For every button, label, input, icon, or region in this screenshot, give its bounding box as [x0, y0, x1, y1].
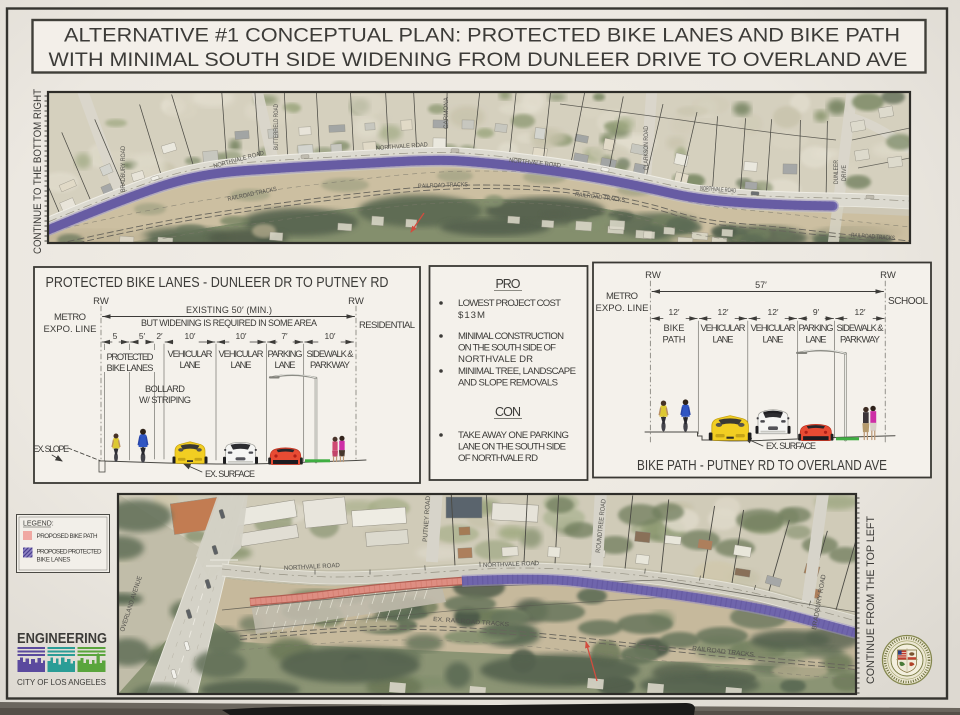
svg-text:12′: 12′ — [668, 307, 679, 317]
svg-text:MINIMAL TREE, LANDSCAPE: MINIMAL TREE, LANDSCAPE — [458, 366, 576, 377]
svg-text:10′: 10′ — [235, 331, 246, 341]
svg-text:TAKE AWAY ONE PARKING: TAKE AWAY ONE PARKING — [458, 430, 569, 441]
svg-text:AND SLOPE REMOVALS: AND SLOPE REMOVALS — [458, 378, 558, 389]
svg-text:BIKE PATH - PUTNEY RD TO OVERL: BIKE PATH - PUTNEY RD TO OVERLAND AVE — [637, 458, 887, 474]
svg-text:LANE: LANE — [713, 335, 734, 345]
svg-text:WITH MINIMAL SOUTH SIDE WIDENI: WITH MINIMAL SOUTH SIDE WIDENING FROM DU… — [49, 49, 908, 71]
svg-text:LANE ON THE SOUTH SIDE: LANE ON THE SOUTH SIDE — [458, 442, 566, 453]
svg-text:EXPO. LINE: EXPO. LINE — [596, 303, 649, 314]
svg-text:VEHICULAR: VEHICULAR — [701, 323, 746, 333]
svg-text:BOLLARD: BOLLARD — [145, 384, 185, 394]
svg-text:PRO: PRO — [496, 277, 521, 291]
svg-text:ALTERNATIVE #1 CONCEPTUAL PLAN: ALTERNATIVE #1 CONCEPTUAL PLAN: PROTECTE… — [64, 25, 900, 47]
svg-text:10′: 10′ — [184, 331, 195, 341]
svg-text:10′: 10′ — [324, 331, 335, 341]
svg-text:LANE: LANE — [763, 335, 784, 345]
svg-text:PROPOSED BIKE PATH: PROPOSED BIKE PATH — [37, 533, 98, 540]
svg-text:7′: 7′ — [281, 331, 288, 341]
svg-text:VEHICULAR: VEHICULAR — [751, 323, 796, 333]
svg-text:LANE: LANE — [231, 360, 252, 370]
svg-text:NORTHVALE DR: NORTHVALE DR — [458, 354, 533, 365]
svg-text:EX. SURFACE: EX. SURFACE — [205, 469, 255, 479]
svg-text:PATH: PATH — [663, 335, 686, 345]
svg-text:PROTECTED BIKE LANES - DUNLEER: PROTECTED BIKE LANES - DUNLEER DR TO PUT… — [46, 274, 389, 291]
svg-text:EX. SLOPE: EX. SLOPE — [33, 444, 69, 454]
svg-text:LEGEND:: LEGEND: — [23, 521, 54, 528]
svg-text:CITY OF LOS ANGELES: CITY OF LOS ANGELES — [17, 678, 106, 687]
svg-text:2′: 2′ — [156, 331, 163, 341]
svg-text:5: 5 — [113, 331, 118, 341]
svg-text:BUT WIDENING IS REQUIRED IN SO: BUT WIDENING IS REQUIRED IN SOME AREA — [141, 318, 317, 328]
svg-text:12′: 12′ — [717, 307, 728, 317]
svg-text:RESIDENTIAL: RESIDENTIAL — [359, 320, 415, 331]
svg-text:RW: RW — [645, 270, 661, 281]
svg-text:LANE: LANE — [806, 335, 827, 345]
svg-text:PARKING: PARKING — [799, 323, 834, 333]
svg-text:SCHOOL: SCHOOL — [888, 296, 928, 307]
svg-text:RW: RW — [93, 296, 109, 307]
svg-text:PARKING: PARKING — [268, 349, 303, 359]
svg-text:EXISTING 50′ (MIN.): EXISTING 50′ (MIN.) — [186, 305, 272, 315]
svg-text:12′: 12′ — [767, 307, 778, 317]
svg-text:BIKE LANES: BIKE LANES — [37, 557, 71, 564]
svg-text:METRO: METRO — [606, 291, 638, 302]
svg-text:CONTINUE FROM THE TOP LEFT: CONTINUE FROM THE TOP LEFT — [865, 516, 877, 684]
svg-text:EXPO. LINE: EXPO. LINE — [44, 324, 97, 335]
svg-text:METRO: METRO — [54, 312, 86, 323]
svg-text:ON THE SOUTH SIDE OF: ON THE SOUTH SIDE OF — [458, 343, 556, 354]
svg-text:RW: RW — [880, 270, 896, 281]
svg-text:BIKE: BIKE — [664, 323, 685, 333]
svg-text:MINIMAL CONSTRUCTION: MINIMAL CONSTRUCTION — [458, 331, 564, 342]
svg-text:PARKWAY: PARKWAY — [840, 335, 880, 345]
svg-text:VEHICULAR: VEHICULAR — [219, 349, 264, 359]
svg-text:CONTINUE TO THE BOTTOM RIGHT: CONTINUE TO THE BOTTOM RIGHT — [32, 89, 44, 254]
svg-text:CON: CON — [495, 405, 521, 419]
svg-text:LANE: LANE — [180, 360, 201, 370]
svg-text:RW: RW — [348, 296, 364, 307]
svg-text:LANE: LANE — [275, 360, 296, 370]
svg-text:$13M: $13M — [458, 310, 485, 321]
svg-text:ENGINEERING: ENGINEERING — [17, 631, 107, 647]
svg-text:LOWEST PROJECT COST: LOWEST PROJECT COST — [458, 298, 561, 309]
svg-text:OF NORTHVALE RD: OF NORTHVALE RD — [458, 453, 538, 464]
svg-text:VEHICULAR: VEHICULAR — [168, 349, 213, 359]
svg-text:BIKE LANES: BIKE LANES — [107, 363, 154, 373]
svg-text:PROTECTED: PROTECTED — [107, 352, 154, 362]
svg-text:SIDEWALK &: SIDEWALK & — [837, 323, 885, 333]
svg-text:PARKWAY: PARKWAY — [310, 360, 350, 370]
svg-text:57′: 57′ — [755, 280, 767, 290]
svg-text:W/ STRIPING: W/ STRIPING — [139, 395, 191, 405]
svg-text:5′: 5′ — [139, 331, 146, 341]
svg-text:12′: 12′ — [854, 307, 865, 317]
svg-text:9′: 9′ — [813, 307, 820, 317]
svg-text:EX. SURFACE: EX. SURFACE — [766, 441, 816, 451]
svg-text:PROPOSED PROTECTED: PROPOSED PROTECTED — [37, 549, 102, 556]
svg-text:SIDEWALK &: SIDEWALK & — [307, 349, 355, 359]
